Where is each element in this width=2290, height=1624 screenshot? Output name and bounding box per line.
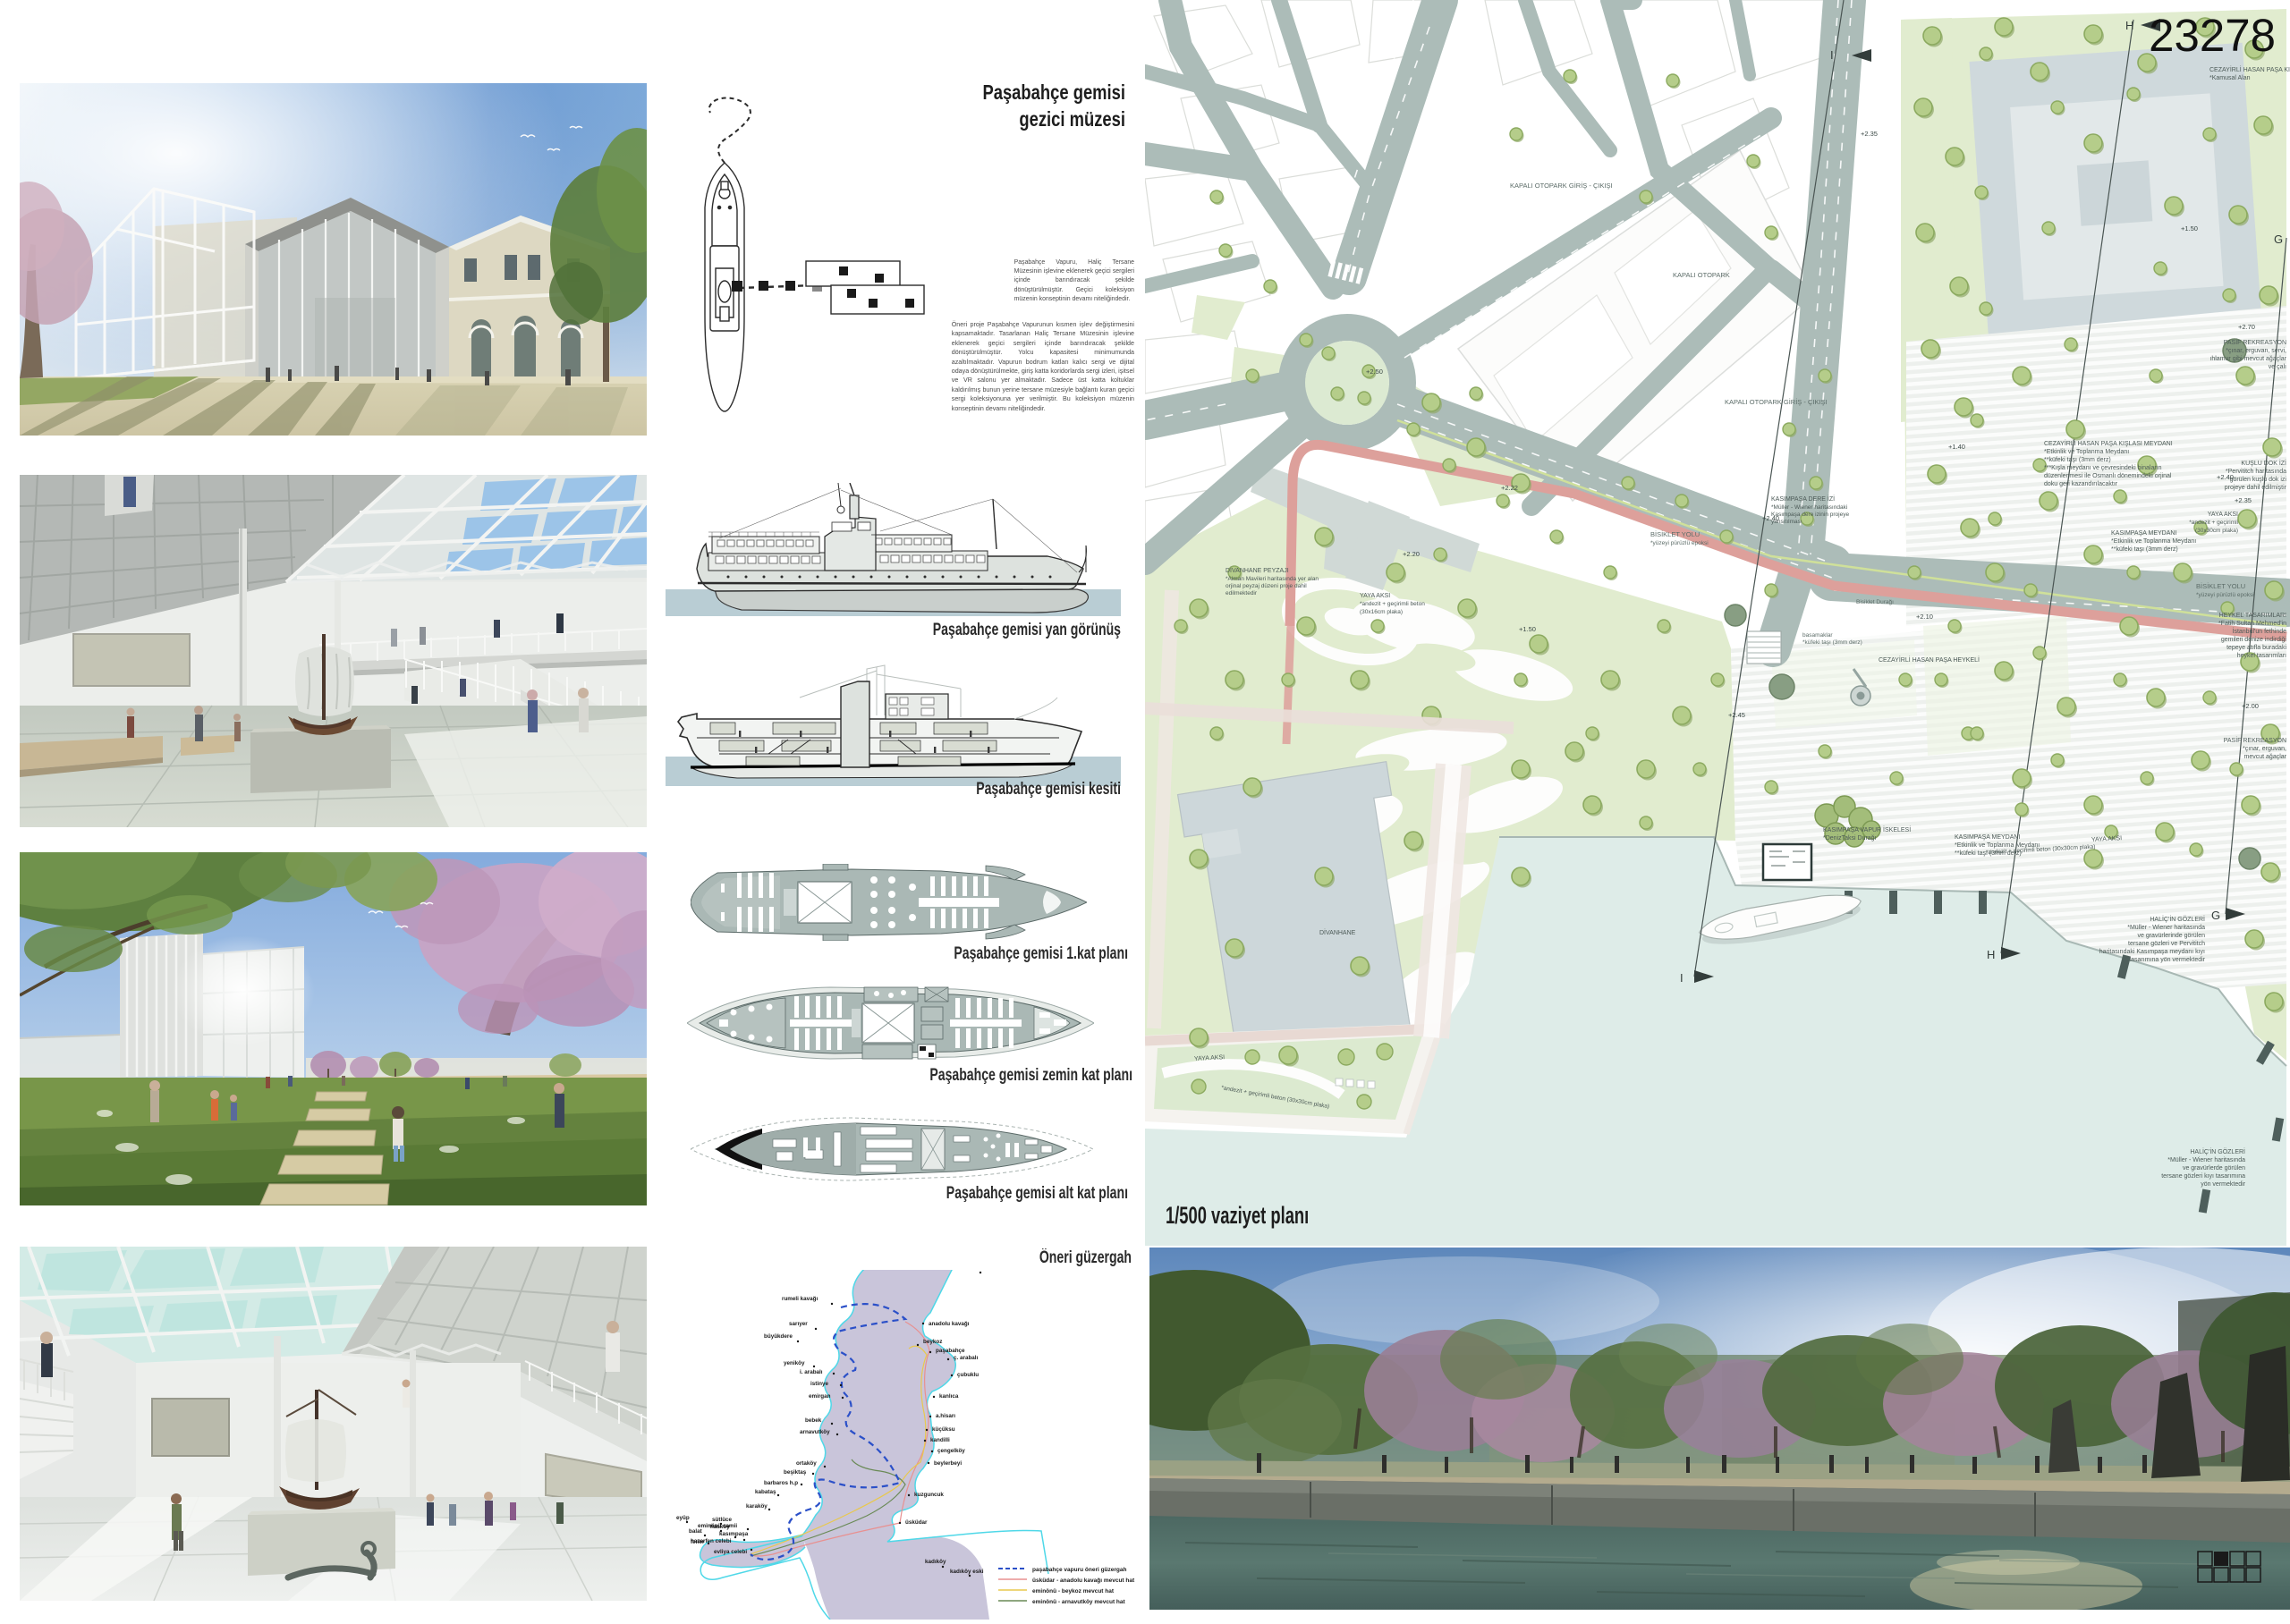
svg-text:a.hisarı: a.hisarı: [936, 1413, 955, 1419]
svg-text:tersane gözleri ve Pervititch: tersane gözleri ve Pervititch: [2128, 941, 2205, 947]
svg-text:+1.50: +1.50: [1519, 625, 1536, 633]
svg-text:orjinal peyzaj düzeni proje da: orjinal peyzaj düzeni proje dahil: [1226, 583, 1307, 589]
svg-text:Kasımpaşa dere izinin projeye: Kasımpaşa dere izinin projeye: [1771, 512, 1849, 518]
svg-text:G: G: [2211, 909, 2220, 922]
svg-text:KASIMPAŞA MEYDANI: KASIMPAŞA MEYDANI: [2111, 530, 2176, 537]
svg-text:edilmektedir: edilmektedir: [1226, 590, 1258, 596]
svg-text:+2.35: +2.35: [2235, 496, 2252, 504]
svg-text:HEYKEL TASARIMLARI: HEYKEL TASARIMLARI: [2219, 613, 2286, 619]
svg-text:bebek: bebek: [805, 1417, 822, 1424]
svg-text:KASIMPAŞA DERE İZİ: KASIMPAŞA DERE İZİ: [1771, 495, 1835, 503]
svg-text:+2.40: +2.40: [2217, 473, 2234, 481]
svg-text:PASİF REKREASYON: PASİF REKREASYON: [2224, 736, 2286, 744]
svg-text:tasarımına yön vermektedir: tasarımına yön vermektedir: [2129, 957, 2205, 963]
svg-text:*Fatih Sultan Mehmed'in: *Fatih Sultan Mehmed'in: [2218, 621, 2286, 627]
svg-text:+1.40: +1.40: [1948, 443, 1965, 451]
svg-text:G: G: [2274, 233, 2283, 246]
svg-text:eminönü - arnavutköy mevcut ha: eminönü - arnavutköy mevcut hat: [1032, 1599, 1125, 1605]
svg-text:*Alman Mavileri haritasında ye: *Alman Mavileri haritasında yer alan: [1226, 576, 1319, 582]
svg-text:büyükdere: büyükdere: [764, 1333, 793, 1340]
svg-text:+2.50: +2.50: [1366, 368, 1383, 376]
svg-text:kandilli: kandilli: [930, 1437, 950, 1443]
svg-text:tersane gözleri kıyı tasarımın: tersane gözleri kıyı tasarımına: [2161, 1173, 2245, 1180]
svg-text:balat: balat: [689, 1528, 703, 1535]
svg-text:mevcut ağaçlar: mevcut ağaçlar: [2244, 754, 2287, 760]
svg-text:KAPALI OTOPARK: KAPALI OTOPARK: [1673, 271, 1730, 279]
svg-text:H: H: [1987, 948, 1995, 961]
svg-text:ç. arabalı: ç. arabalı: [954, 1355, 979, 1361]
svg-text:barbaros h.p: barbaros h.p: [764, 1480, 798, 1486]
svg-text:I: I: [1830, 48, 1834, 62]
svg-text:emirgan: emirgan: [809, 1393, 831, 1400]
svg-text:*andezit + geçirimli beton: *andezit + geçirimli beton: [1360, 601, 1425, 607]
svg-text:paşabahçe: paşabahçe: [936, 1348, 965, 1354]
svg-text:kadıköy: kadıköy: [925, 1559, 946, 1565]
svg-text:*andezit + geçirimli: *andezit + geçirimli: [2189, 520, 2238, 526]
svg-text:BİSİKLET YOLU: BİSİKLET YOLU: [1650, 530, 1700, 538]
svg-text:KASIMPAŞA MEYDANI: KASIMPAŞA MEYDANI: [1955, 834, 2020, 841]
svg-text:*Etkinlik ve Toplanma Meydanı: *Etkinlik ve Toplanma Meydanı: [2111, 538, 2196, 545]
svg-text:fener: fener: [691, 1539, 705, 1545]
svg-text:*yüzeyi pürüzlü epoksi: *yüzeyi pürüzlü epoksi: [1650, 540, 1709, 546]
svg-text:KUŞLU DOK İZİ: KUŞLU DOK İZİ: [2241, 459, 2286, 467]
svg-text:YAYA AKSI: YAYA AKSI: [2208, 512, 2238, 518]
svg-text:paşabahçe vapuru öneri güzerga: paşabahçe vapuru öneri güzergah: [1032, 1567, 1127, 1573]
svg-text:istinye: istinye: [810, 1381, 828, 1387]
svg-text:HALİÇ'İN GÖZLERİ: HALİÇ'İN GÖZLERİ: [2190, 1147, 2245, 1155]
svg-text:kasımpaşa: kasımpaşa: [719, 1531, 749, 1537]
svg-text:BİSİKLET YOLU: BİSİKLET YOLU: [2196, 582, 2245, 590]
svg-text:+2.00: +2.00: [2242, 702, 2259, 710]
svg-text:düzenlenmesi ile Osmanlı dönem: düzenlenmesi ile Osmanlı dönemindeki orj…: [2044, 473, 2172, 479]
svg-text:CEZAYİRLİ HASAN PAŞA HEYKELİ: CEZAYİRLİ HASAN PAŞA HEYKELİ: [1879, 656, 1980, 664]
svg-text:DİVANHANE: DİVANHANE: [1319, 928, 1356, 936]
svg-text:Bisiklet Durağı: Bisiklet Durağı: [1856, 599, 1894, 605]
svg-text:*Müller - Wiener haritasındaki: *Müller - Wiener haritasındaki: [1771, 504, 1847, 511]
svg-text:KASIMPAŞA VAPUR İSKELESİ: KASIMPAŞA VAPUR İSKELESİ: [1823, 825, 1911, 833]
svg-text:yön vermektedir: yön vermektedir: [2201, 1181, 2245, 1188]
svg-text:ortaköy: ortaköy: [796, 1460, 817, 1467]
svg-text:projeye dahil edilmiştir: projeye dahil edilmiştir: [2225, 485, 2287, 491]
svg-text:rumeli kavağı: rumeli kavağı: [782, 1296, 818, 1302]
svg-text:kadıköy eski: kadıköy eski: [950, 1569, 984, 1575]
svg-text:İstanbul'un fethinde: İstanbul'un fethinde: [2233, 627, 2287, 635]
svg-text:sütlüce: sütlüce: [712, 1517, 733, 1523]
svg-text:kabataş: kabataş: [755, 1489, 776, 1495]
svg-text:yeniköy: yeniköy: [784, 1360, 805, 1366]
svg-text:CEZAYİRLİ HASAN PAŞA KIŞLASI M: CEZAYİRLİ HASAN PAŞA KIŞLASI MEYDANI: [2044, 439, 2173, 447]
svg-text:küçüksu: küçüksu: [932, 1426, 955, 1433]
svg-text:ve gravürlerinde görülen: ve gravürlerinde görülen: [2138, 933, 2206, 939]
svg-text:beşiktaş: beşiktaş: [784, 1469, 807, 1476]
svg-text:*Pervititch haritasında: *Pervititch haritasında: [2226, 469, 2286, 475]
svg-text:(30x30cm plaka): (30x30cm plaka): [2195, 528, 2238, 534]
svg-text:KAPALI OTOPARK GİRİŞ - ÇIKIŞI: KAPALI OTOPARK GİRİŞ - ÇIKIŞI: [1725, 398, 1828, 406]
svg-text:*çınar, erguvan, servi,: *çınar, erguvan, servi,: [2226, 348, 2286, 354]
svg-text:PASİF REKREASYON: PASİF REKREASYON: [2224, 338, 2286, 346]
svg-text:*yüzeyi pürüzlü epoksi: *yüzeyi pürüzlü epoksi: [2196, 592, 2254, 598]
svg-text:*Müller - Wiener haritasında: *Müller - Wiener haritasında: [2127, 925, 2205, 931]
svg-text:heykel tasarımları: heykel tasarımları: [2237, 653, 2286, 659]
svg-text:ve çalı: ve çalı: [2269, 364, 2286, 370]
svg-text:KAPALI OTOPARK GİRİŞ - ÇIKIŞI: KAPALI OTOPARK GİRİŞ - ÇIKIŞI: [1510, 182, 1613, 190]
svg-text:*Müller - Wiener haritasında: *Müller - Wiener haritasında: [2167, 1157, 2245, 1163]
svg-text:doku geri kazandırılacaktır: doku geri kazandırılacaktır: [2044, 481, 2118, 487]
svg-text:HALİÇ'İN GÖZLERİ: HALİÇ'İN GÖZLERİ: [2150, 915, 2205, 923]
svg-text:beylerbeyi: beylerbeyi: [934, 1460, 962, 1467]
svg-text:basamaklar: basamaklar: [1802, 632, 1833, 639]
svg-text:+2.70: +2.70: [2238, 323, 2255, 331]
svg-text:i. arabalı: i. arabalı: [800, 1369, 823, 1375]
svg-text:+2.10: +2.10: [1916, 613, 1933, 621]
svg-text:haritasındaki Kasımpaşa meydan: haritasındaki Kasımpaşa meydanı kıyı: [2099, 949, 2205, 955]
svg-text:gemileri denize indirdiği: gemileri denize indirdiği: [2221, 637, 2287, 643]
svg-text:*küfeki taşı (3mm derz): *küfeki taşı (3mm derz): [1802, 639, 1862, 646]
svg-text:*Kamusal Alan: *Kamusal Alan: [2209, 75, 2251, 81]
svg-text:sarıyer: sarıyer: [789, 1321, 808, 1327]
svg-text:karaköy: karaköy: [746, 1503, 768, 1510]
svg-text:+2.45: +2.45: [1728, 711, 1745, 719]
svg-text:çengelköy: çengelköy: [937, 1448, 965, 1454]
svg-text:+2.35: +2.35: [1861, 130, 1878, 138]
svg-text:CEZAYİRLİ HASAN PAŞA KIŞLASI: CEZAYİRLİ HASAN PAŞA KIŞLASI: [2209, 65, 2290, 73]
svg-text:*çınar, erguvan,: *çınar, erguvan,: [2243, 746, 2286, 752]
svg-text:+1.50: +1.50: [2181, 224, 2198, 233]
svg-text:+2.20: +2.20: [1403, 550, 1420, 558]
svg-text:kuzguncuk: kuzguncuk: [914, 1492, 944, 1498]
svg-text:evliya celebi: evliya celebi: [714, 1549, 747, 1555]
svg-text:tepeye atıfla buradaki: tepeye atıfla buradaki: [2226, 645, 2286, 651]
svg-text:eminönü - beykoz mevcut hat: eminönü - beykoz mevcut hat: [1032, 1588, 1115, 1594]
svg-text:**küfeki taşı (3mm derz): **küfeki taşı (3mm derz): [2044, 457, 2111, 463]
svg-text:ıhlamur gibi mevcut ağaçlar: ıhlamur gibi mevcut ağaçlar: [2209, 356, 2286, 362]
svg-text:eyüp: eyüp: [676, 1515, 690, 1521]
svg-text:I: I: [1680, 971, 1684, 985]
svg-text:görülen kuşlu dok izi: görülen kuşlu dok izi: [2230, 477, 2287, 483]
svg-text:(30x16cm plaka): (30x16cm plaka): [1360, 609, 1403, 615]
svg-text:hasköy: hasköy: [710, 1524, 730, 1530]
svg-text:çubuklu: çubuklu: [957, 1372, 979, 1378]
svg-text:**küfeki taşı (3mm derz): **küfeki taşı (3mm derz): [2111, 546, 2178, 553]
svg-text:üsküdar - anadolu kavağı mevcu: üsküdar - anadolu kavağı mevcut hat: [1032, 1577, 1135, 1584]
svg-text:+2.40: +2.40: [1762, 514, 1779, 522]
svg-text:YAYA AKSI: YAYA AKSI: [1360, 593, 1390, 599]
svg-text:*DenizTaksi Durağı: *DenizTaksi Durağı: [1823, 835, 1877, 842]
svg-text:anadolu kavağı: anadolu kavağı: [929, 1321, 970, 1327]
svg-text:arnavutköy: arnavutköy: [800, 1429, 830, 1435]
svg-text:beykoz: beykoz: [923, 1339, 942, 1345]
svg-text:kanlıca: kanlıca: [939, 1393, 959, 1400]
svg-text:H: H: [2125, 19, 2133, 32]
svg-text:***Kışla meydanı ve çevresinde: ***Kışla meydanı ve çevresindeki binalar…: [2044, 465, 2162, 471]
svg-text:ve gravürlerde görülen: ve gravürlerde görülen: [2183, 1165, 2245, 1171]
svg-text:üsküdar: üsküdar: [905, 1519, 928, 1526]
svg-text:*Etkinlik ve Toplanma Meydanı: *Etkinlik ve Toplanma Meydanı: [2044, 449, 2129, 455]
svg-text:DİVANHANE PEYZAJI: DİVANHANE PEYZAJI: [1226, 566, 1289, 574]
svg-text:+2.22: +2.22: [1501, 484, 1518, 492]
